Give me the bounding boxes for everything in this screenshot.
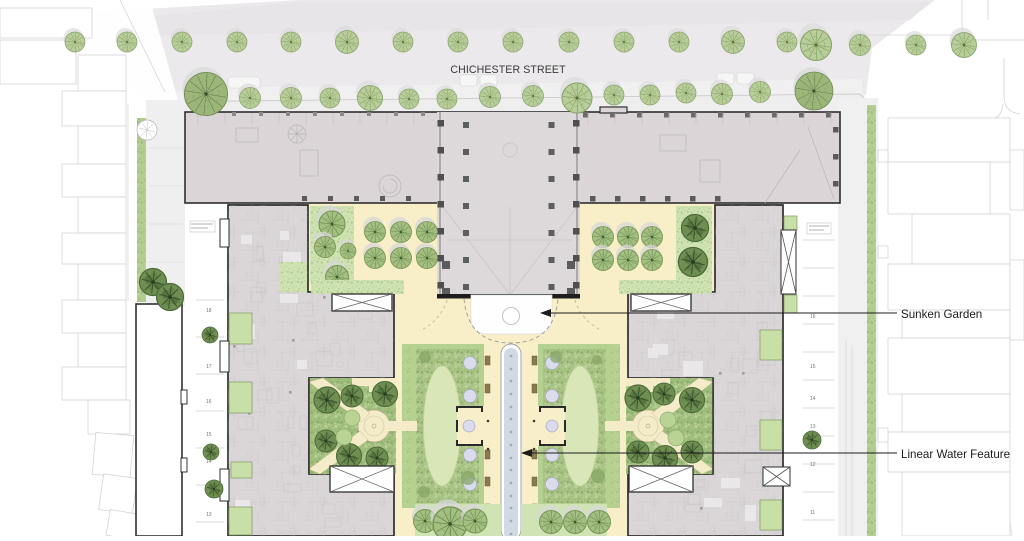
svg-text:15: 15 xyxy=(810,364,816,370)
svg-text:17: 17 xyxy=(206,364,212,370)
svg-text:Linear Water Feature: Linear Water Feature xyxy=(901,448,1010,461)
svg-text:CHICHESTER STREET: CHICHESTER STREET xyxy=(450,64,566,76)
svg-text:16: 16 xyxy=(810,314,816,320)
svg-text:15: 15 xyxy=(206,432,212,438)
svg-text:13: 13 xyxy=(810,424,816,430)
svg-text:11: 11 xyxy=(810,510,815,516)
svg-text:16: 16 xyxy=(206,399,212,405)
svg-text:12: 12 xyxy=(810,462,816,468)
svg-text:Sunken Garden: Sunken Garden xyxy=(901,308,982,321)
svg-text:14: 14 xyxy=(810,396,816,402)
svg-text:18: 18 xyxy=(206,308,212,314)
svg-text:13: 13 xyxy=(206,512,212,518)
